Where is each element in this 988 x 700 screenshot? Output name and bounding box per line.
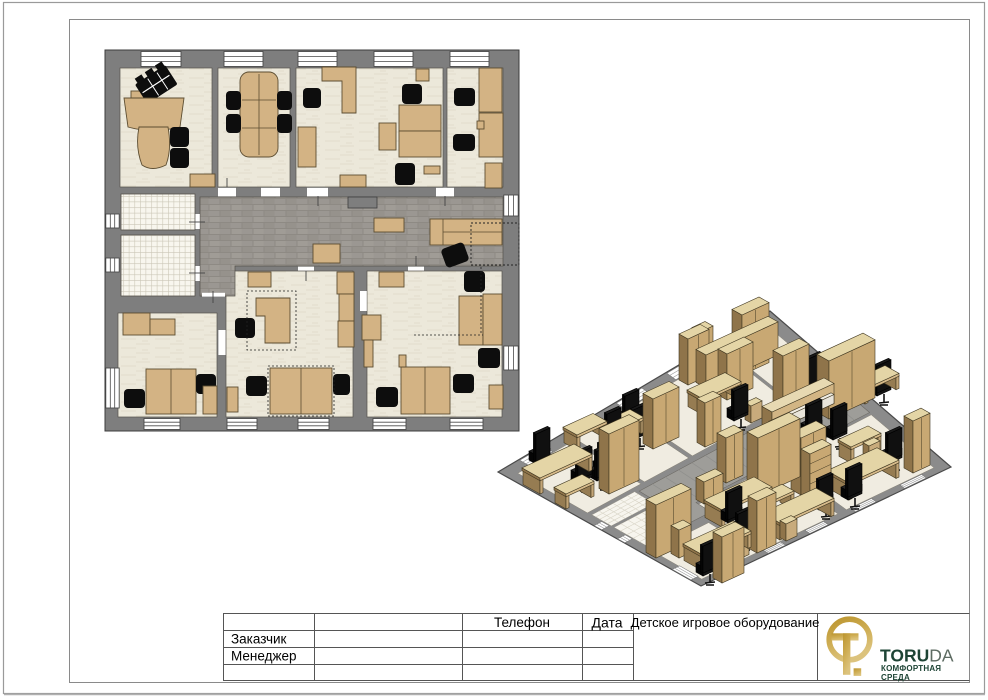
svg-text:КОМФОРТНАЯ: КОМФОРТНАЯ: [881, 664, 941, 673]
svg-text:Телефон: Телефон: [494, 615, 550, 630]
svg-text:TORUDA: TORUDA: [880, 646, 954, 666]
svg-text:Дата: Дата: [591, 615, 622, 631]
svg-text:Детское игровое оборудование: Детское игровое оборудование: [631, 615, 820, 630]
svg-text:Менеджер: Менеджер: [231, 649, 297, 664]
svg-text:Заказчик: Заказчик: [231, 632, 287, 647]
svg-text:СРЕДА: СРЕДА: [881, 673, 910, 682]
